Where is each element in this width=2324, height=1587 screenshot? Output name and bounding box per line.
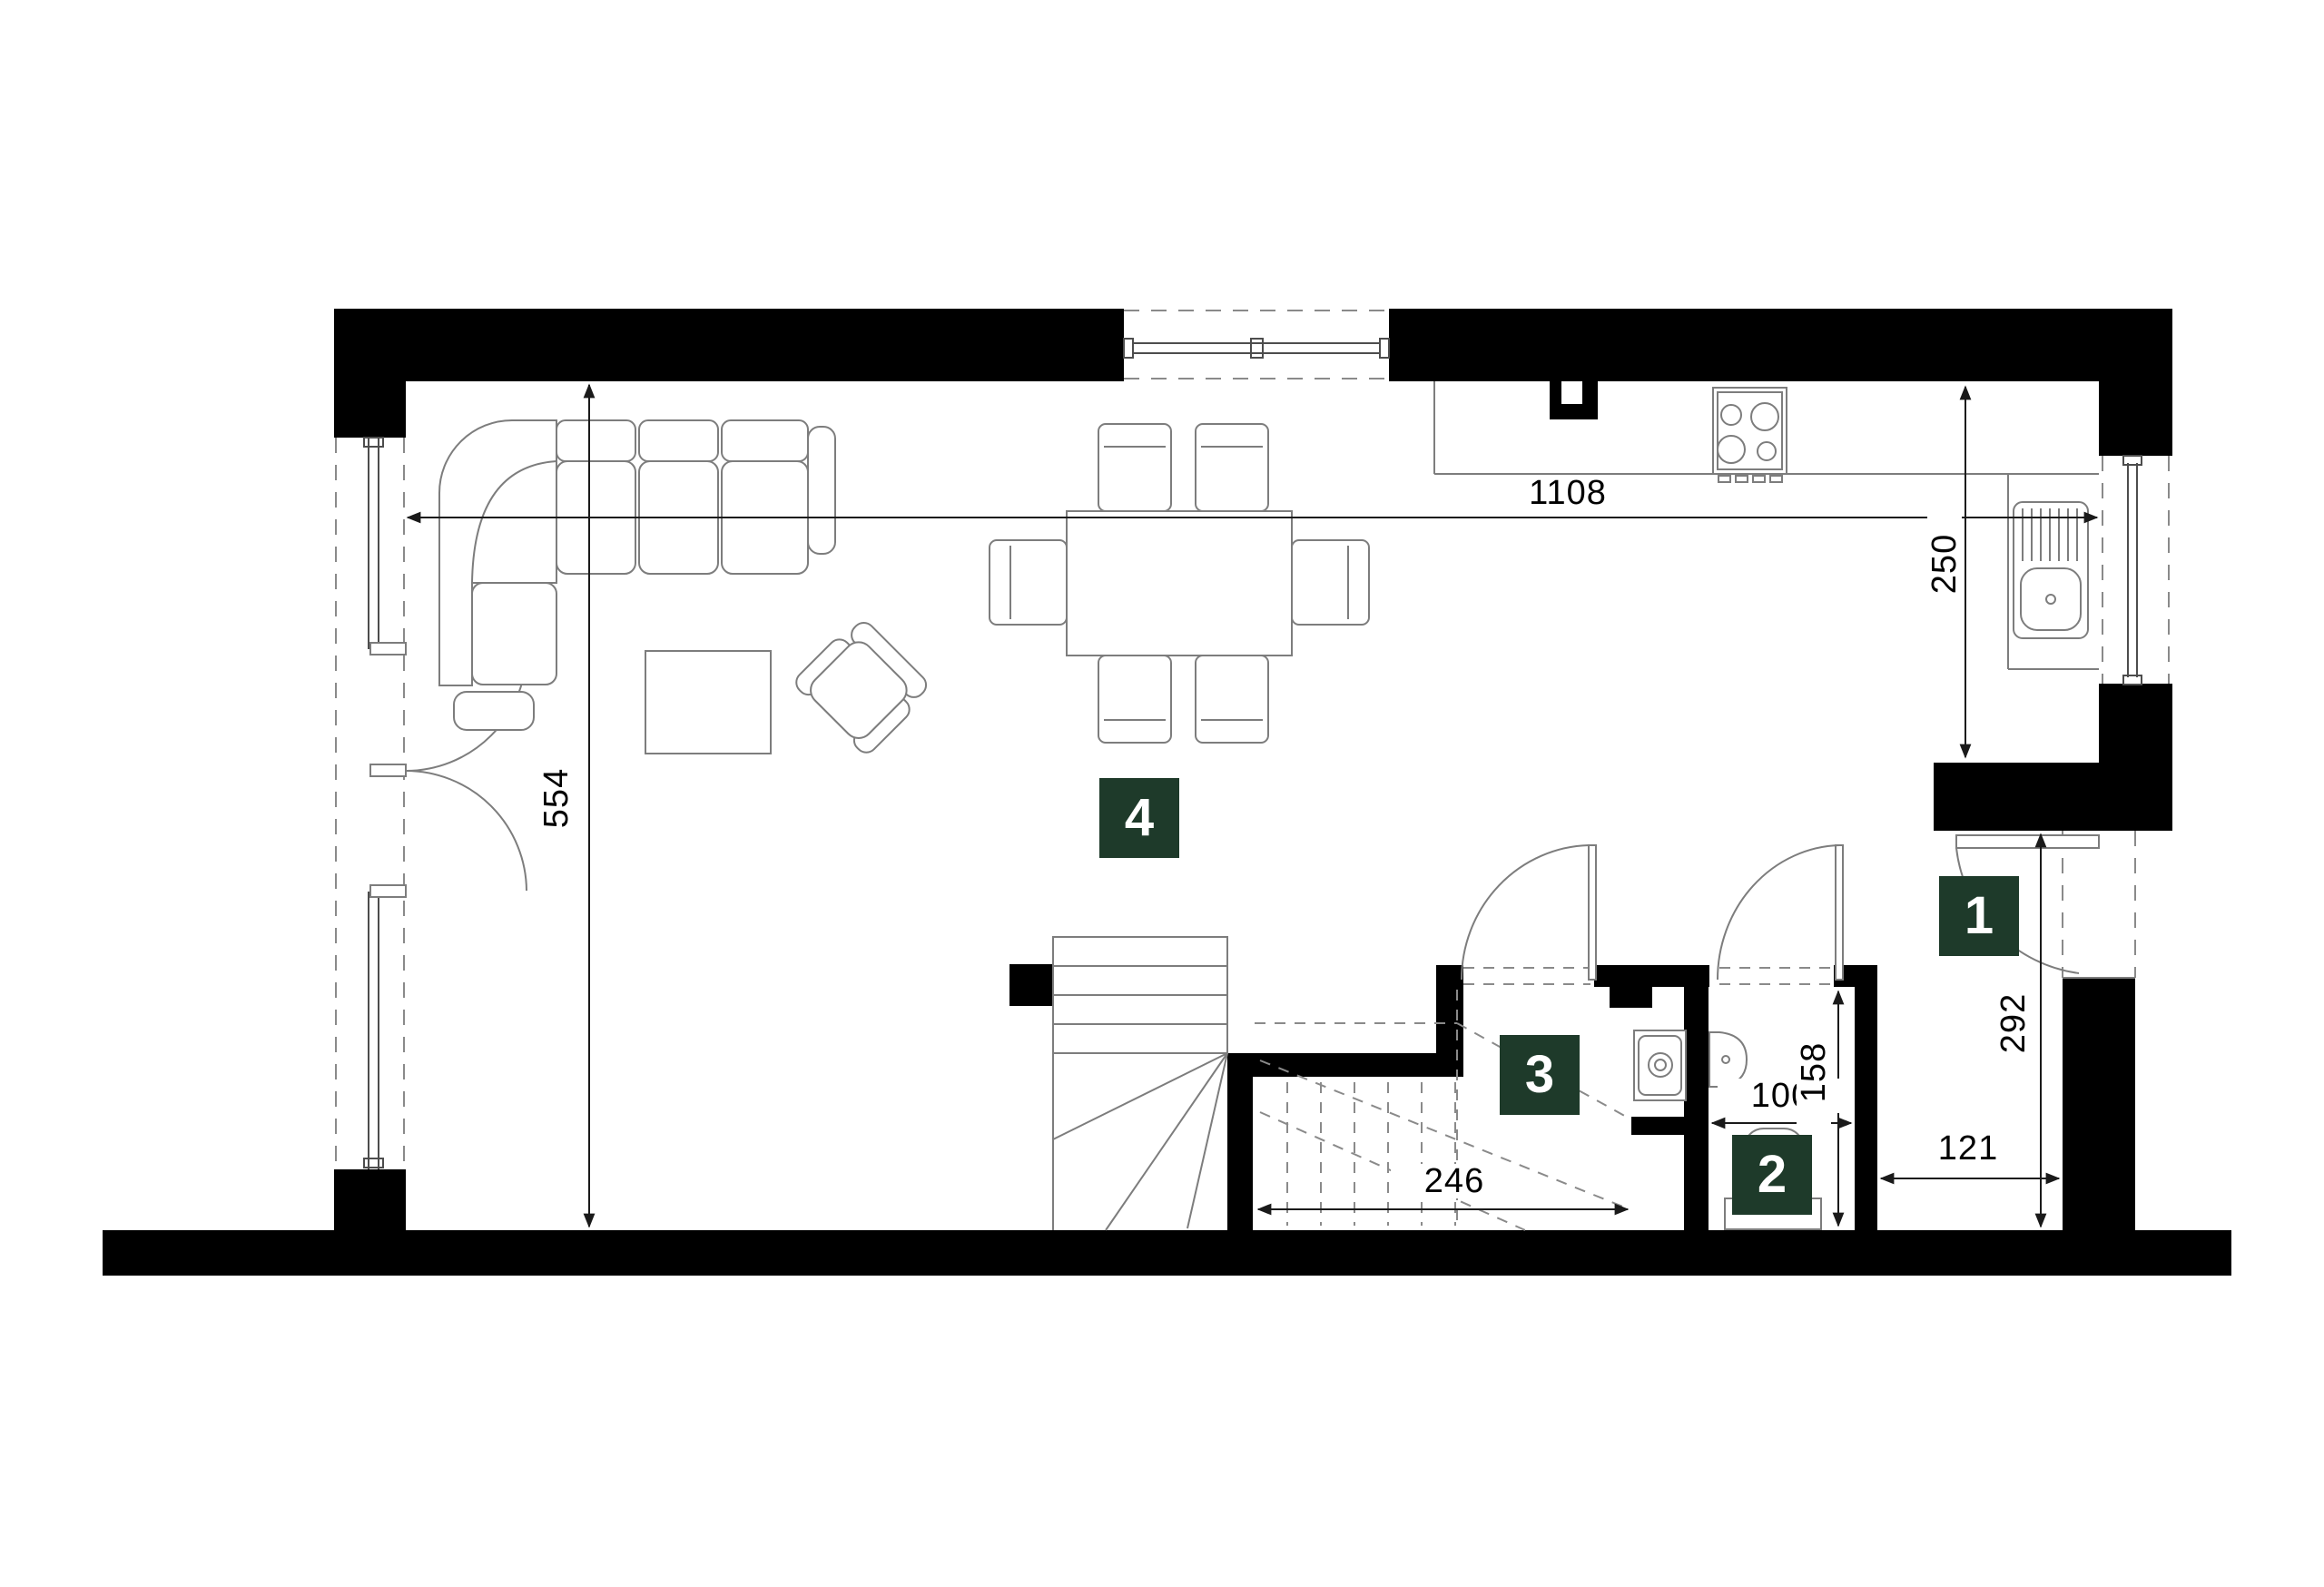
window-right bbox=[2102, 456, 2169, 685]
window-top bbox=[1124, 310, 1389, 379]
coffee-table-icon bbox=[645, 651, 771, 754]
room3-bottom-stub bbox=[1631, 1117, 1684, 1135]
right-wall-top bbox=[2099, 309, 2172, 456]
kitchen-sink-icon bbox=[2014, 502, 2088, 638]
room-badge-2: 2 bbox=[1732, 1135, 1812, 1215]
room-badge-3: 3 bbox=[1500, 1035, 1580, 1115]
door-swing-arc bbox=[1462, 845, 1589, 980]
wc-top-stub bbox=[1610, 987, 1652, 1008]
stair-winders bbox=[1053, 1053, 1227, 1230]
dining-set bbox=[990, 424, 1369, 743]
kitchen-hall-wall bbox=[1934, 763, 2172, 831]
wc-top-wall bbox=[1594, 965, 1709, 987]
room3-room2-wall bbox=[1684, 987, 1709, 1230]
stair-post bbox=[1009, 964, 1053, 1006]
room-badge-4: 4 bbox=[1099, 778, 1179, 858]
washbasin-icon bbox=[1634, 1030, 1686, 1100]
left-wall-pier bbox=[334, 1169, 406, 1230]
bottom-wall bbox=[103, 1230, 2231, 1276]
stove-icon bbox=[1713, 388, 1787, 482]
room-badge-1: 1 bbox=[1939, 876, 2019, 956]
right-wall-bottom bbox=[2063, 978, 2135, 1230]
left-wall-top bbox=[334, 309, 406, 438]
stair-treads bbox=[1053, 966, 1227, 1024]
door-leaf bbox=[1956, 835, 2099, 848]
dining-table-icon bbox=[1067, 511, 1292, 655]
door-swing-arc bbox=[406, 771, 527, 891]
room3-left-jamb bbox=[1436, 965, 1463, 1077]
room3-door bbox=[1462, 845, 1596, 984]
room2-right-wall bbox=[1855, 987, 1877, 1230]
door-leaf bbox=[1589, 845, 1596, 980]
sofa-icon bbox=[439, 420, 835, 730]
dim-label-wc-depth: 158 bbox=[1797, 1018, 1831, 1127]
dim-label-living-depth: 554 bbox=[539, 744, 574, 853]
dim-label-living-width: 1108 bbox=[1504, 476, 1631, 510]
door-swing-arc bbox=[1718, 845, 1839, 980]
vent-notch bbox=[1561, 381, 1582, 404]
armchair-icon bbox=[792, 615, 934, 757]
dim-label-hall-width: 121 bbox=[1905, 1131, 2032, 1166]
door-leaf bbox=[1836, 845, 1843, 980]
dim-label-stair-width: 246 bbox=[1391, 1164, 1518, 1198]
stair-side-wall bbox=[1227, 1053, 1460, 1077]
sink-drainer bbox=[2023, 508, 2077, 561]
floor-plan: 1108 554 250 292 121 100 158 246 1 2 3 4 bbox=[0, 0, 2324, 1587]
dim-label-kitchen-depth: 250 bbox=[1927, 509, 1962, 618]
dim-label-hall-depth: 292 bbox=[1996, 969, 2031, 1078]
window-left bbox=[336, 438, 404, 1169]
top-wall-left bbox=[334, 309, 1124, 381]
right-wall-mid bbox=[2099, 684, 2172, 767]
top-wall-right bbox=[1389, 309, 2172, 381]
room2-door bbox=[1718, 845, 1843, 984]
stair-lower-wall bbox=[1227, 1077, 1253, 1230]
